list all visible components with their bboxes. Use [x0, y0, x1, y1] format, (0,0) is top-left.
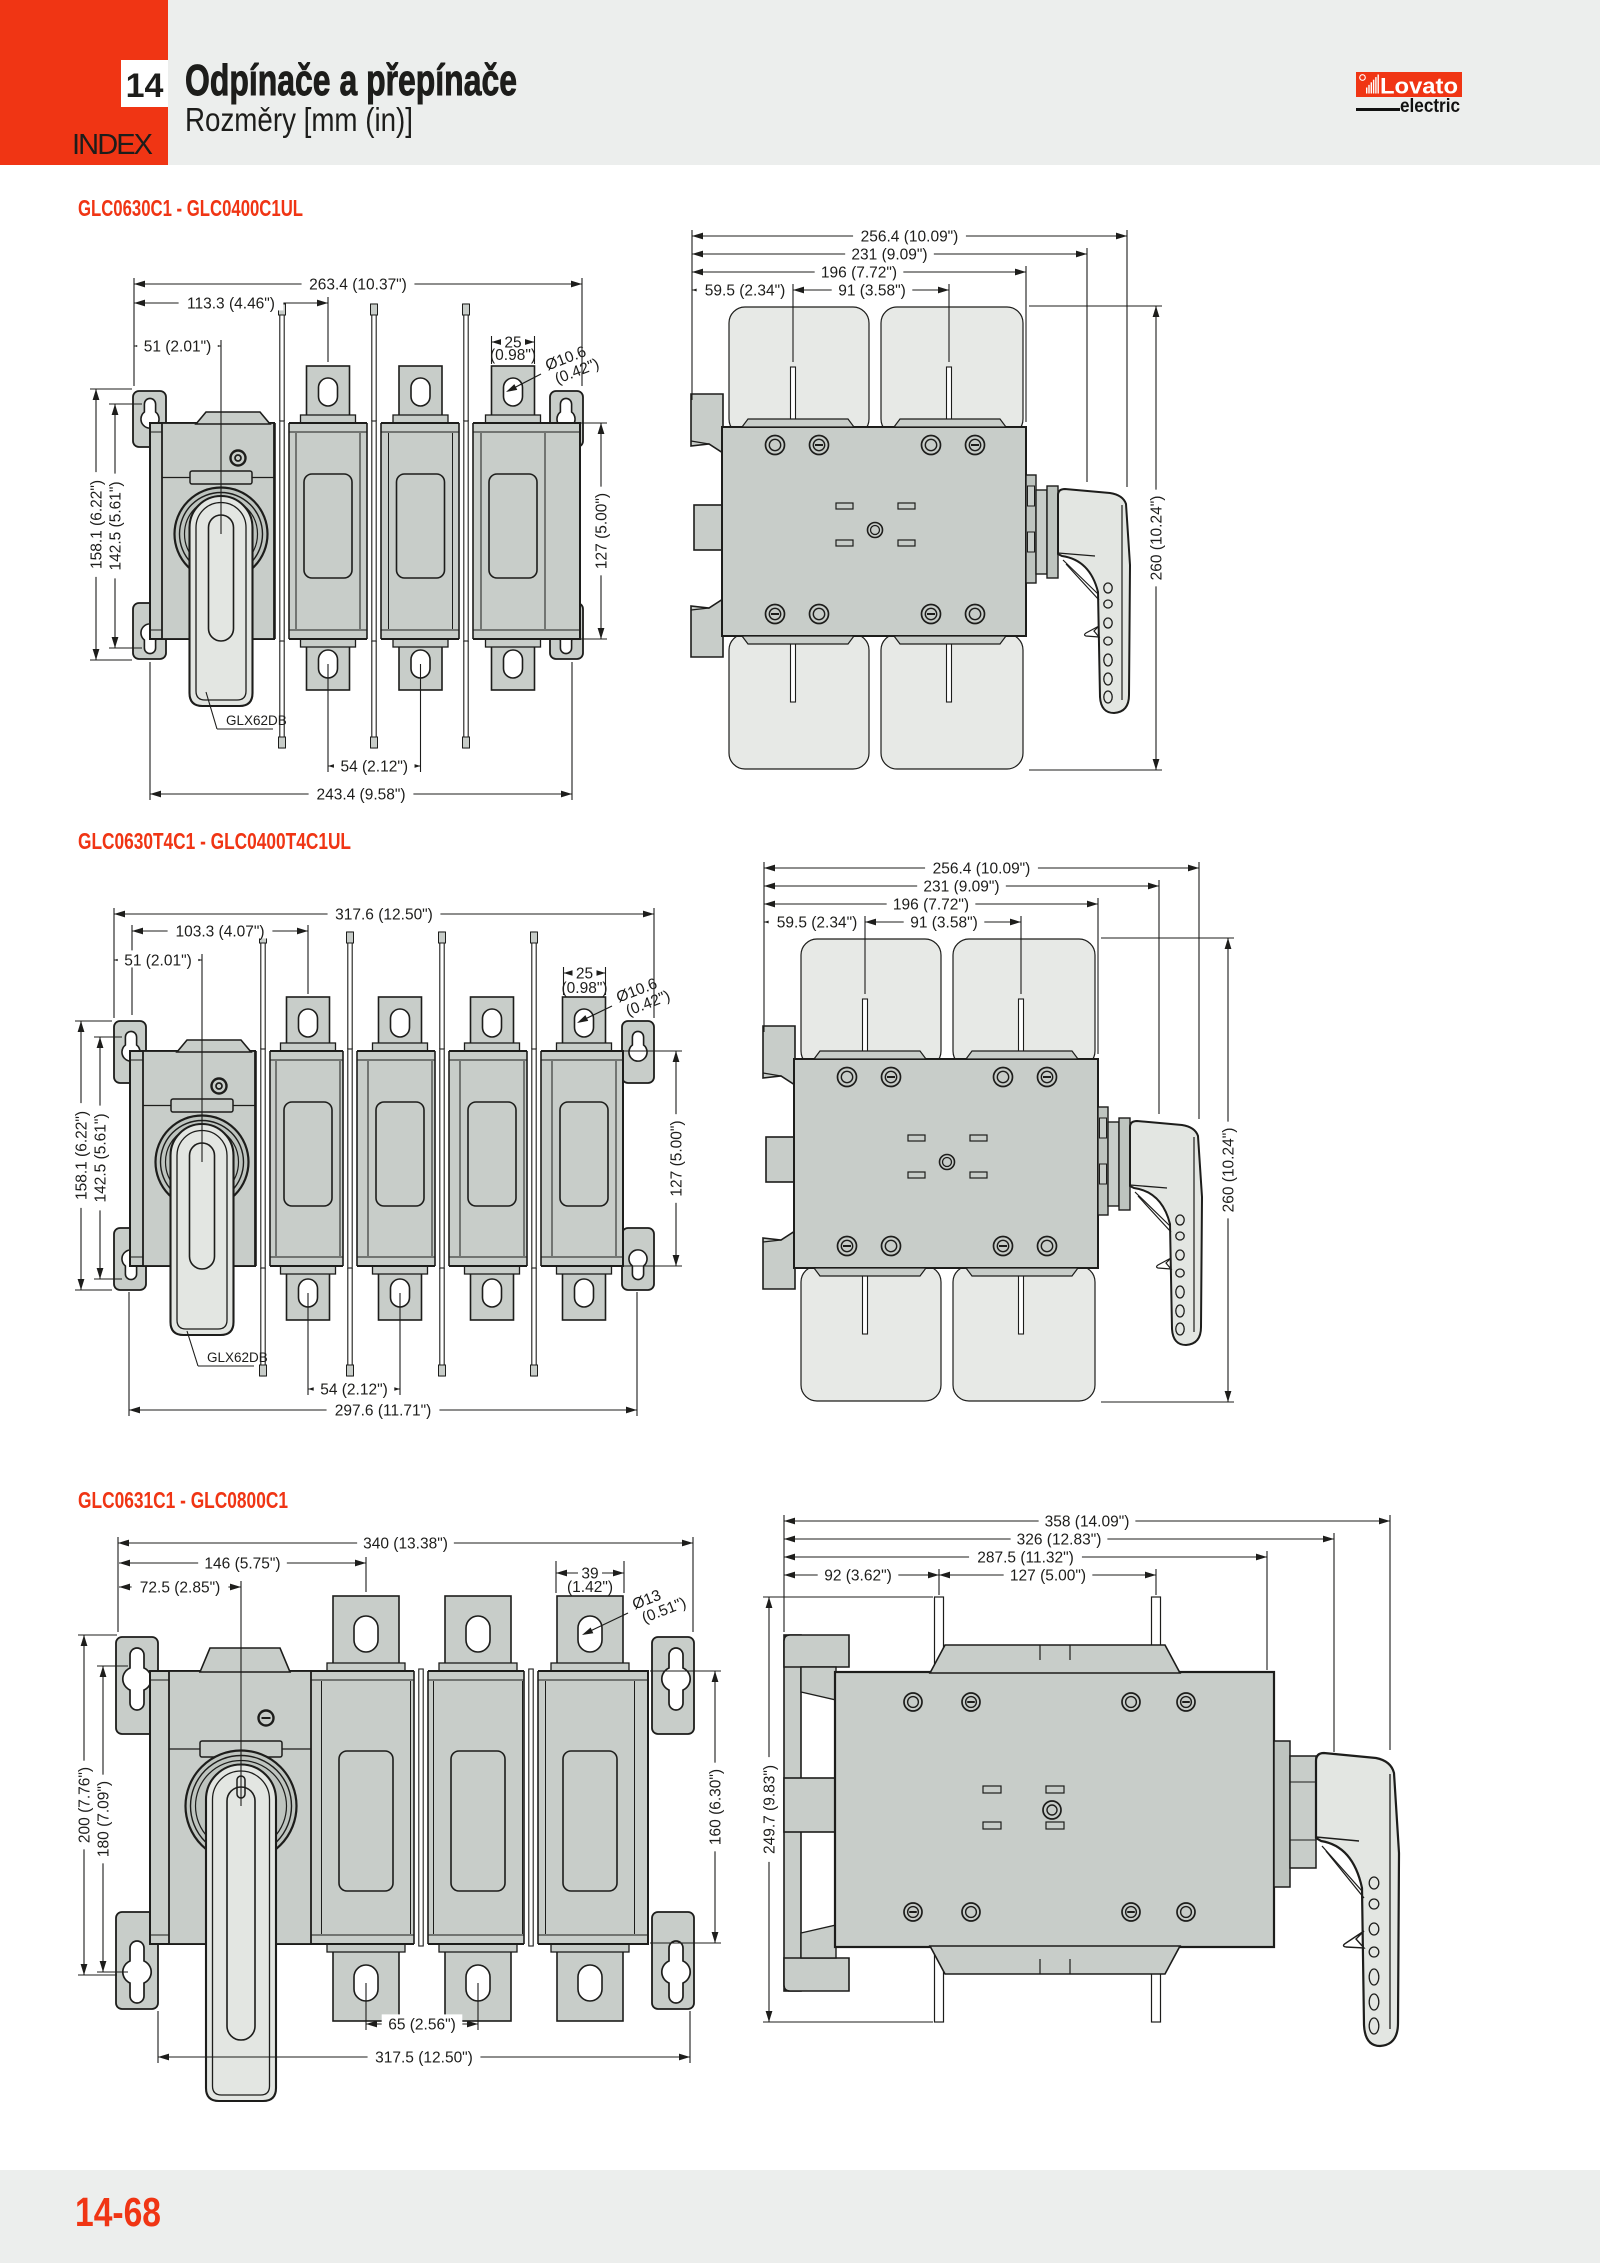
svg-text:260 (10.24"): 260 (10.24") [1221, 1128, 1238, 1213]
svg-text:91 (3.58"): 91 (3.58") [910, 915, 978, 932]
svg-text:158.1 (6.22"): 158.1 (6.22") [89, 480, 106, 569]
svg-text:91 (3.58"): 91 (3.58") [838, 283, 906, 300]
svg-text:(1.42"): (1.42") [567, 1579, 613, 1596]
svg-text:113.3 (4.46"): 113.3 (4.46") [187, 296, 275, 313]
svg-text:GLX62DB: GLX62DB [226, 713, 287, 728]
svg-text:231 (9.09"): 231 (9.09") [923, 879, 999, 896]
svg-text:158.1 (6.22"): 158.1 (6.22") [74, 1111, 91, 1200]
svg-text:72.5 (2.85"): 72.5 (2.85") [140, 1580, 220, 1597]
svg-text:GLX62DB: GLX62DB [207, 1350, 268, 1365]
svg-text:256.4 (10.09"): 256.4 (10.09") [933, 861, 1031, 878]
svg-text:103.3 (4.07"): 103.3 (4.07") [175, 924, 264, 941]
svg-text:59.5 (2.34"): 59.5 (2.34") [777, 915, 857, 932]
svg-text:317.6 (12.50"): 317.6 (12.50") [335, 907, 433, 924]
svg-text:GLC0630C1 - GLC0400C1UL: GLC0630C1 - GLC0400C1UL [78, 195, 303, 221]
svg-text:127 (5.00"): 127 (5.00") [594, 493, 611, 569]
svg-text:14: 14 [126, 67, 164, 105]
svg-text:340 (13.38"): 340 (13.38") [363, 1536, 448, 1553]
svg-text:65 (2.56"): 65 (2.56") [388, 2017, 456, 2034]
svg-text:51 (2.01"): 51 (2.01") [124, 953, 192, 970]
svg-text:196 (7.72"): 196 (7.72") [821, 265, 897, 282]
svg-text:59.5 (2.34"): 59.5 (2.34") [705, 283, 785, 300]
svg-text:142.5 (5.61"): 142.5 (5.61") [93, 1113, 110, 1202]
svg-text:358 (14.09"): 358 (14.09") [1045, 1514, 1130, 1531]
svg-text:231 (9.09"): 231 (9.09") [851, 247, 927, 264]
svg-text:180 (7.09"): 180 (7.09") [96, 1781, 113, 1857]
svg-text:260 (10.24"): 260 (10.24") [1149, 496, 1166, 581]
svg-text:51 (2.01"): 51 (2.01") [144, 339, 212, 356]
svg-text:243.4 (9.58"): 243.4 (9.58") [316, 787, 405, 804]
svg-text:146 (5.75"): 146 (5.75") [204, 1556, 280, 1573]
svg-text:326 (12.83"): 326 (12.83") [1017, 1532, 1102, 1549]
svg-text:160 (6.30"): 160 (6.30") [708, 1769, 725, 1845]
svg-text:GLC0631C1 - GLC0800C1: GLC0631C1 - GLC0800C1 [78, 1487, 288, 1513]
svg-text:(0.98"): (0.98") [490, 347, 536, 364]
svg-text:54 (2.12"): 54 (2.12") [320, 1382, 388, 1399]
svg-text:297.6 (11.71"): 297.6 (11.71") [335, 1403, 432, 1420]
svg-text:249.7 (9.83"): 249.7 (9.83") [762, 1765, 779, 1854]
svg-text:200 (7.76"): 200 (7.76") [77, 1767, 94, 1843]
svg-text:287.5 (11.32"): 287.5 (11.32") [977, 1550, 1074, 1567]
svg-text:GLC0630T4C1 - GLC0400T4C1UL: GLC0630T4C1 - GLC0400T4C1UL [78, 828, 351, 854]
svg-text:electric: electric [1400, 96, 1460, 117]
svg-text:196 (7.72"): 196 (7.72") [893, 897, 969, 914]
svg-text:Lovato: Lovato [1380, 74, 1458, 99]
svg-text:Rozměry [mm (in)]: Rozměry [mm (in)] [185, 101, 413, 138]
svg-text:Odpínače a přepínače: Odpínače a přepínače [185, 56, 517, 105]
svg-text:317.5 (12.50"): 317.5 (12.50") [375, 2050, 473, 2067]
svg-text:INDEX: INDEX [72, 129, 153, 161]
svg-text:92 (3.62"): 92 (3.62") [824, 1568, 892, 1585]
svg-text:256.4 (10.09"): 256.4 (10.09") [861, 229, 959, 246]
svg-text:127 (5.00"): 127 (5.00") [669, 1120, 686, 1196]
svg-text:14-68: 14-68 [75, 2189, 161, 2235]
svg-text:127 (5.00"): 127 (5.00") [1010, 1568, 1086, 1585]
svg-text:(0.98"): (0.98") [562, 980, 608, 997]
svg-text:54 (2.12"): 54 (2.12") [340, 759, 408, 776]
svg-text:263.4 (10.37"): 263.4 (10.37") [309, 277, 407, 294]
svg-text:142.5 (5.61"): 142.5 (5.61") [108, 481, 125, 570]
